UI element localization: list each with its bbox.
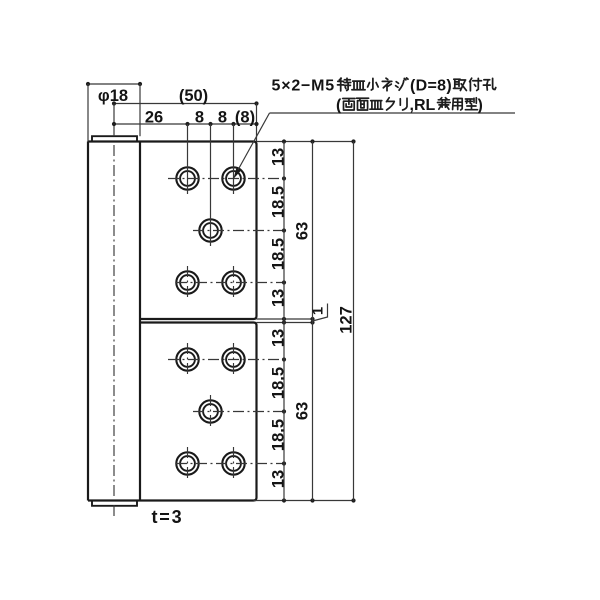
svg-text:13: 13 [270, 329, 288, 347]
svg-text:1: 1 [310, 307, 327, 315]
svg-text:8: 8 [195, 109, 204, 127]
svg-text:5×2−M5: 5×2−M5 [272, 78, 336, 95]
svg-text:t=3: t=3 [152, 507, 184, 527]
svg-text:13: 13 [270, 148, 288, 166]
svg-text:(50): (50) [179, 87, 208, 105]
svg-text:18.5: 18.5 [270, 419, 288, 451]
svg-text:63: 63 [294, 222, 312, 240]
svg-text:127: 127 [338, 306, 356, 334]
svg-text:(: ( [336, 97, 342, 114]
svg-text:18.5: 18.5 [270, 238, 288, 270]
svg-text:18.5: 18.5 [270, 367, 288, 399]
svg-text:63: 63 [294, 402, 312, 420]
svg-text:(8): (8) [235, 109, 255, 127]
svg-text:26: 26 [145, 109, 163, 127]
svg-text:(D=8): (D=8) [410, 78, 452, 95]
svg-text:,RL: ,RL [410, 97, 436, 114]
svg-text:8: 8 [218, 109, 227, 127]
svg-text:13: 13 [270, 470, 288, 488]
svg-text:18.5: 18.5 [270, 186, 288, 218]
svg-text:): ) [478, 97, 483, 114]
svg-text:13: 13 [270, 289, 288, 307]
